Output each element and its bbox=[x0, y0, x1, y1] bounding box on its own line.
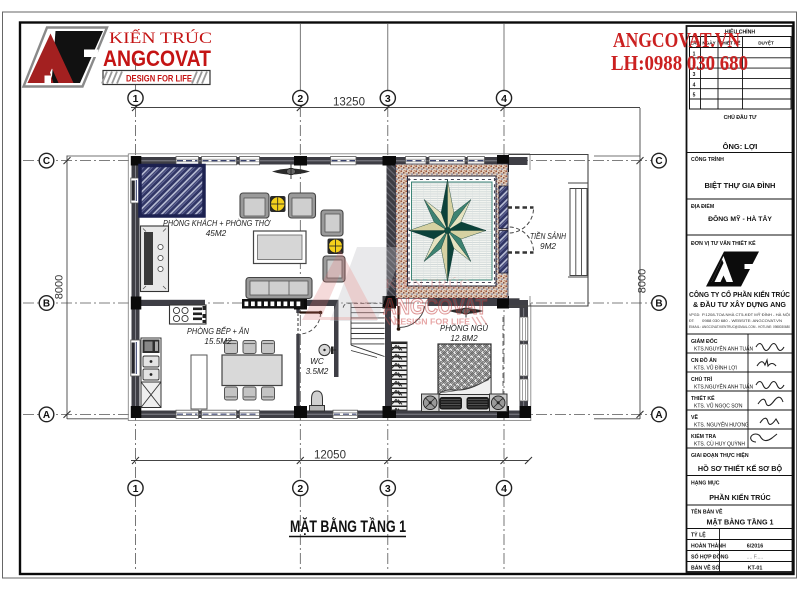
svg-text:KIỂM TRA: KIỂM TRA bbox=[691, 433, 716, 440]
svg-text:4: 4 bbox=[501, 483, 507, 495]
svg-text:PHÒNG BẾP + ĂN: PHÒNG BẾP + ĂN bbox=[187, 325, 249, 336]
svg-text:DESIGN FOR LIFE: DESIGN FOR LIFE bbox=[126, 74, 192, 85]
svg-text:MẶT BẰNG TẦNG 1: MẶT BẰNG TẦNG 1 bbox=[706, 517, 773, 527]
svg-text:WC: WC bbox=[310, 357, 324, 366]
svg-text:GIAI ĐOẠN THỰC HIỆN: GIAI ĐOẠN THỰC HIỆN bbox=[691, 451, 749, 459]
svg-text:KIẾN TRÚC: KIẾN TRÚC bbox=[385, 276, 470, 291]
svg-text:8000: 8000 bbox=[54, 275, 66, 299]
svg-text:& ĐẦU TƯ XÂY DỰNG ANG: & ĐẦU TƯ XÂY DỰNG ANG bbox=[693, 299, 786, 309]
svg-text:KTS. VŨ NGỌC SƠN: KTS. VŨ NGỌC SƠN bbox=[694, 403, 743, 410]
svg-text:CHỦ TRÌ: CHỦ TRÌ bbox=[691, 375, 713, 383]
svg-text:2: 2 bbox=[297, 483, 303, 495]
svg-text:P.1208-TOA NHÀ CT5-KĐT MỸ ĐÌNH: P.1208-TOA NHÀ CT5-KĐT MỸ ĐÌNH - HÀ NỘI bbox=[702, 312, 790, 317]
svg-text:8000: 8000 bbox=[637, 269, 649, 293]
svg-text:ĐƠN VỊ TƯ VẤN THIẾT KẾ: ĐƠN VỊ TƯ VẤN THIẾT KẾ bbox=[691, 240, 756, 247]
svg-text:13250: 13250 bbox=[333, 97, 365, 109]
svg-text:6/2016: 6/2016 bbox=[747, 544, 764, 550]
svg-text:3.5M2: 3.5M2 bbox=[306, 367, 329, 376]
svg-text:BIỆT THỰ GIA ĐÌNH: BIỆT THỰ GIA ĐÌNH bbox=[705, 181, 776, 190]
svg-text:GIÁM ĐỐC: GIÁM ĐỐC bbox=[691, 338, 718, 345]
svg-text:0988 030 680 - WEBSITE: ANGCOV: 0988 030 680 - WEBSITE: ANGCOVAT.VN bbox=[702, 319, 782, 323]
svg-text:HẠNG MỤC: HẠNG MỤC bbox=[691, 481, 720, 487]
svg-text:ÔNG: LỢI: ÔNG: LỢI bbox=[723, 142, 758, 151]
svg-text:45M2: 45M2 bbox=[206, 229, 227, 238]
svg-text:KIẾN TRÚC: KIẾN TRÚC bbox=[109, 30, 212, 47]
svg-text:PHÒNG KHÁCH + PHÒNG THỜ: PHÒNG KHÁCH + PHÒNG THỜ bbox=[163, 218, 271, 228]
svg-text:ANGCOVAT: ANGCOVAT bbox=[383, 294, 487, 319]
svg-text:ANGCOVAT.VN: ANGCOVAT.VN bbox=[613, 28, 740, 52]
svg-text:CÔNG TY CỔ PHẦN KIẾN TRÚC: CÔNG TY CỔ PHẦN KIẾN TRÚC bbox=[689, 289, 791, 299]
svg-text:A: A bbox=[43, 410, 50, 421]
svg-text:KTS.NGUYỄN ANH TUẤN: KTS.NGUYỄN ANH TUẤN bbox=[694, 384, 753, 391]
svg-text:VPGD:: VPGD: bbox=[689, 313, 700, 317]
svg-text:4: 4 bbox=[693, 82, 696, 88]
svg-text:EMAIL:: EMAIL: bbox=[689, 325, 701, 329]
svg-text:9M2: 9M2 bbox=[540, 242, 556, 251]
svg-text:1: 1 bbox=[133, 483, 139, 495]
svg-text:LH:0988 030 680: LH:0988 030 680 bbox=[611, 51, 748, 75]
svg-text:PHẦN KIẾN TRÚC: PHẦN KIẾN TRÚC bbox=[709, 492, 771, 502]
svg-text:4: 4 bbox=[501, 93, 507, 105]
svg-text:KTS.NGUYỄN ANH TUẤN: KTS.NGUYỄN ANH TUẤN bbox=[694, 346, 753, 353]
svg-text:2: 2 bbox=[297, 93, 303, 105]
svg-text:B: B bbox=[43, 299, 50, 310]
svg-text:ANGCOVAT.KIENTRUC@GMAIL.COM -: ANGCOVAT.KIENTRUC@GMAIL.COM - HOTLINE: 0… bbox=[702, 325, 790, 329]
svg-text:.... F.....: .... F..... bbox=[747, 555, 763, 561]
svg-text:C: C bbox=[655, 156, 662, 167]
svg-text:HỒ SƠ THIẾT KẾ SƠ BỘ: HỒ SƠ THIẾT KẾ SƠ BỘ bbox=[698, 463, 783, 473]
svg-text:TÊN BẢN VẼ: TÊN BẢN VẼ bbox=[691, 508, 723, 516]
svg-text:15.5M2: 15.5M2 bbox=[204, 337, 232, 346]
svg-text:12.8M2: 12.8M2 bbox=[450, 334, 478, 343]
svg-text:ANGCOVAT: ANGCOVAT bbox=[103, 46, 211, 71]
svg-text:5: 5 bbox=[693, 93, 696, 99]
svg-text:HOÀN THÀNH: HOÀN THÀNH bbox=[691, 543, 726, 550]
svg-text:CÔNG TRÌNH: CÔNG TRÌNH bbox=[691, 155, 724, 163]
svg-text:1: 1 bbox=[133, 93, 139, 105]
svg-text:KTS. VŨ ĐÌNH LỢI: KTS. VŨ ĐÌNH LỢI bbox=[694, 365, 737, 372]
svg-text:C: C bbox=[43, 156, 50, 167]
svg-text:KTS. NGUYỄN HƯƠNG: KTS. NGUYỄN HƯƠNG bbox=[694, 422, 749, 429]
svg-text:PHÒNG NGỦ: PHÒNG NGỦ bbox=[440, 322, 488, 333]
svg-text:ĐT:: ĐT: bbox=[689, 319, 695, 323]
svg-text:12050: 12050 bbox=[314, 450, 346, 462]
svg-text:TỶ LỆ: TỶ LỆ bbox=[691, 531, 706, 539]
svg-text:DUYỆT: DUYỆT bbox=[758, 39, 774, 46]
svg-text:ĐÔNG MỸ - HÀ TÂY: ĐÔNG MỸ - HÀ TÂY bbox=[708, 214, 772, 223]
svg-text:BẢN VẼ SỐ: BẢN VẼ SỐ bbox=[691, 565, 720, 572]
svg-text:KTS. CÙ HUY QUỲNH: KTS. CÙ HUY QUỲNH bbox=[694, 441, 745, 448]
svg-text:VẼ: VẼ bbox=[691, 414, 698, 421]
svg-text:ĐỊA ĐIỂM: ĐỊA ĐIỂM bbox=[691, 203, 714, 210]
svg-text:CHỦ ĐẦU TƯ: CHỦ ĐẦU TƯ bbox=[724, 114, 758, 121]
svg-text:TIỀN SẢNH: TIỀN SẢNH bbox=[530, 230, 566, 241]
svg-text:CN ĐỒ ÁN: CN ĐỒ ÁN bbox=[691, 357, 717, 364]
svg-text:B: B bbox=[655, 299, 662, 310]
svg-text:MẶT BẰNG TẦNG 1: MẶT BẰNG TẦNG 1 bbox=[290, 517, 406, 536]
svg-text:3: 3 bbox=[385, 93, 391, 105]
svg-text:THIẾT KẾ: THIẾT KẾ bbox=[691, 395, 715, 402]
svg-text:KT-01: KT-01 bbox=[748, 566, 763, 572]
svg-text:A: A bbox=[655, 410, 662, 421]
svg-text:3: 3 bbox=[385, 483, 391, 495]
svg-text:SỐ HỢP ĐỒNG: SỐ HỢP ĐỒNG bbox=[691, 554, 728, 561]
